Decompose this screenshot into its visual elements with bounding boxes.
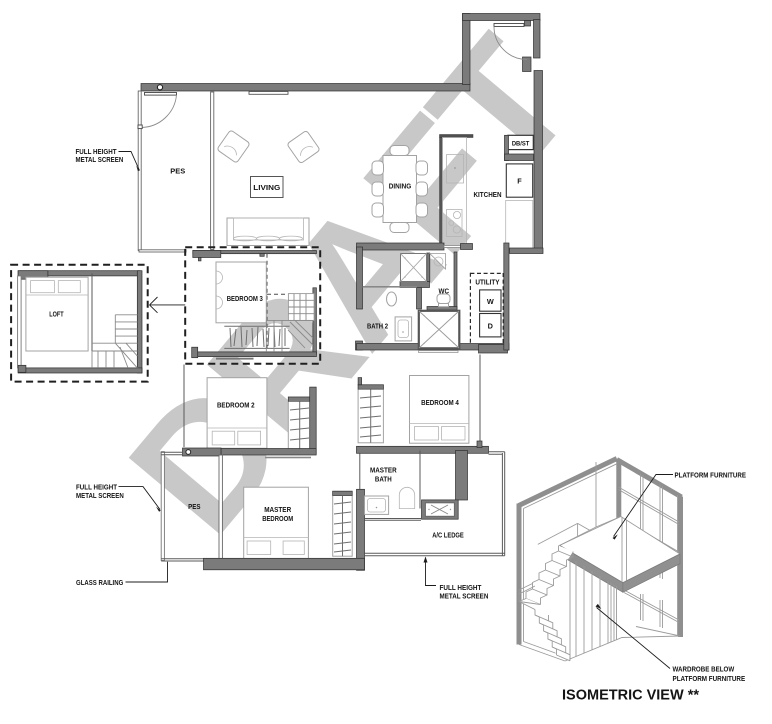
svg-text:F: F [517, 177, 522, 186]
svg-text:PES: PES [188, 502, 201, 511]
svg-text:BATH 2: BATH 2 [367, 322, 388, 331]
svg-text:LIVING: LIVING [253, 183, 280, 192]
svg-text:DINING: DINING [389, 182, 412, 191]
svg-text:KITCHEN: KITCHEN [474, 190, 502, 199]
svg-text:UTILITY: UTILITY [475, 277, 499, 286]
svg-text:METAL SCREEN: METAL SCREEN [76, 155, 124, 164]
svg-text:PLATFORM FURNITURE: PLATFORM FURNITURE [675, 471, 747, 480]
svg-text:PES: PES [170, 167, 185, 176]
svg-text:BATH: BATH [375, 475, 392, 484]
svg-text:BEDROOM: BEDROOM [262, 514, 293, 523]
svg-text:METAL SCREEN: METAL SCREEN [76, 491, 124, 500]
svg-text:LOFT: LOFT [49, 310, 64, 319]
svg-text:D: D [488, 322, 493, 331]
svg-text:MASTER: MASTER [264, 505, 292, 514]
svg-text:DB/ST: DB/ST [512, 140, 530, 147]
svg-text:BEDROOM 2: BEDROOM 2 [217, 400, 255, 409]
svg-text:WARDROBE BELOW: WARDROBE BELOW [673, 664, 735, 673]
svg-text:BEDROOM 3: BEDROOM 3 [227, 294, 263, 303]
svg-text:W: W [487, 297, 494, 306]
svg-text:BEDROOM 4: BEDROOM 4 [421, 398, 459, 407]
svg-text:ISOMETRIC VIEW **: ISOMETRIC VIEW ** [562, 688, 699, 704]
svg-text:GLASS RAILING: GLASS RAILING [76, 578, 124, 587]
svg-text:A/C LEDGE: A/C LEDGE [432, 531, 464, 540]
svg-text:METAL SCREEN: METAL SCREEN [440, 591, 489, 600]
svg-text:MASTER: MASTER [370, 465, 397, 474]
svg-text:PLATFORM FURNITURE: PLATFORM FURNITURE [673, 674, 746, 683]
